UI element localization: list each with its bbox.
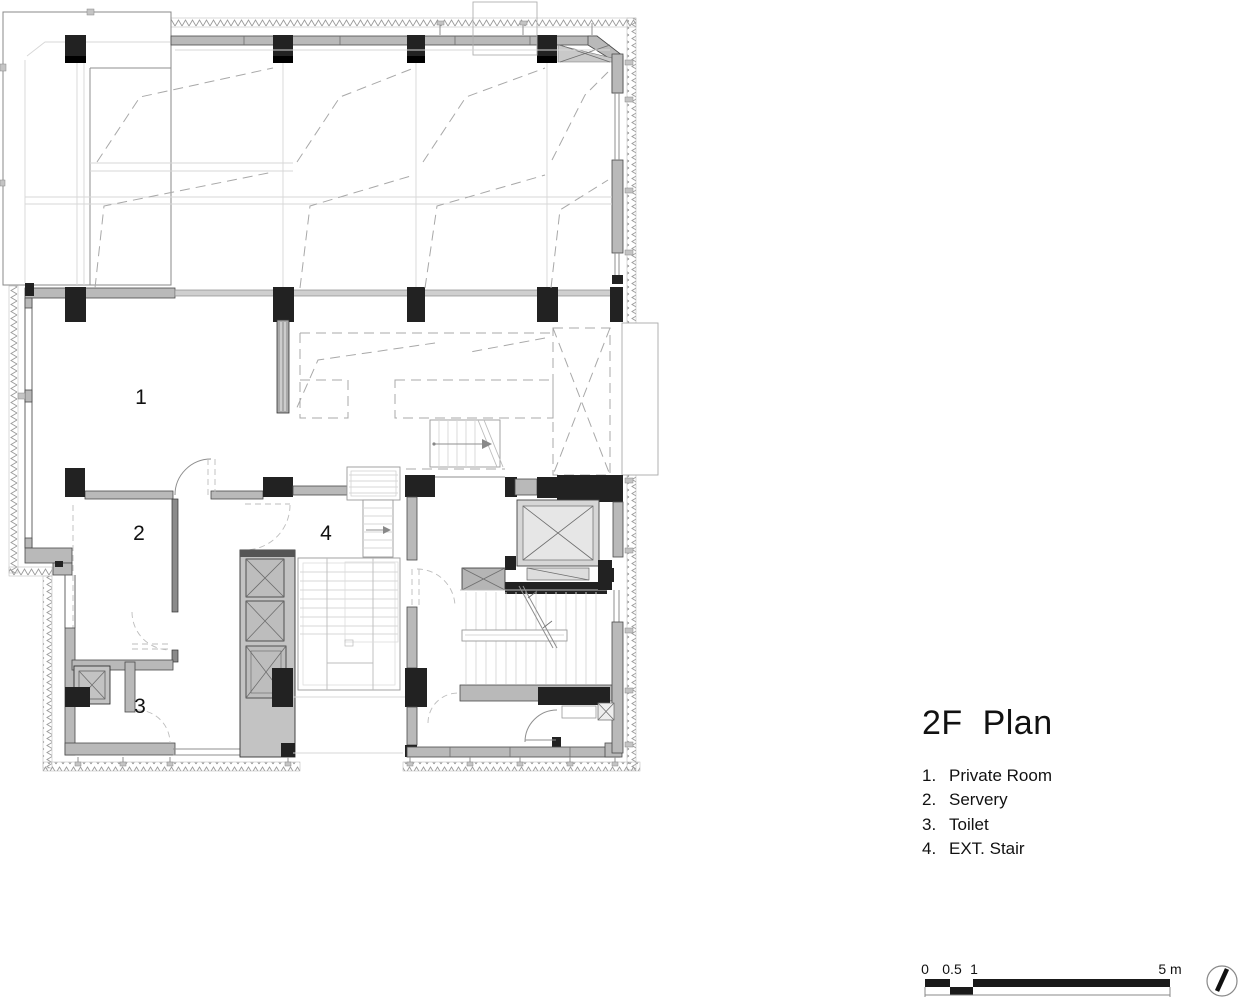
room-label-ext-stair: 4	[320, 522, 332, 545]
floor-plan-svg: 1 2 3 4 0 0.5 1 5 m	[0, 0, 1240, 1000]
legend-item-ext-stair: 4. EXT. Stair	[922, 837, 1053, 861]
scale-tick-1: 1	[970, 961, 978, 977]
legend-item-servery: 2. Servery	[922, 788, 1053, 812]
scale-bar: 0 0.5 1 5 m	[921, 961, 1182, 997]
drawing-sheet: 1 2 3 4 0 0.5 1 5 m 2F Plan 1. Private R…	[0, 0, 1240, 1000]
title-block: 2F Plan 1. Private Room 2. Servery 3. To…	[922, 704, 1053, 862]
scale-tick-0: 0	[921, 961, 929, 977]
mid-wall-band	[25, 283, 623, 322]
legend: 1. Private Room 2. Servery 3. Toilet 4. …	[922, 764, 1053, 862]
legend-label: Toilet	[949, 813, 989, 837]
room-label-toilet: 3	[134, 695, 146, 718]
legend-item-private: 1. Private Room	[922, 764, 1053, 788]
legend-number: 2.	[922, 788, 949, 812]
stair-run-upper	[430, 420, 503, 467]
scale-tick-05: 0.5	[942, 961, 962, 977]
legend-number: 3.	[922, 813, 949, 837]
page-title: 2F Plan	[922, 704, 1053, 743]
scale-tick-5m: 5 m	[1158, 961, 1181, 977]
stair-elevator-block	[405, 475, 623, 757]
room-private	[18, 298, 293, 548]
north-needle-icon	[1207, 966, 1237, 996]
service-shaft-strip	[240, 550, 295, 757]
legend-label: Private Room	[949, 764, 1052, 788]
legend-number: 4.	[922, 837, 949, 861]
legend-number: 1.	[922, 764, 949, 788]
ext-stair	[293, 467, 407, 753]
legend-label: EXT. Stair	[949, 837, 1025, 861]
room-label-servery: 2	[133, 522, 145, 545]
legend-item-toilet: 3. Toilet	[922, 813, 1053, 837]
legend-label: Servery	[949, 788, 1008, 812]
room-toilet	[65, 612, 240, 755]
room-label-private: 1	[135, 386, 147, 409]
